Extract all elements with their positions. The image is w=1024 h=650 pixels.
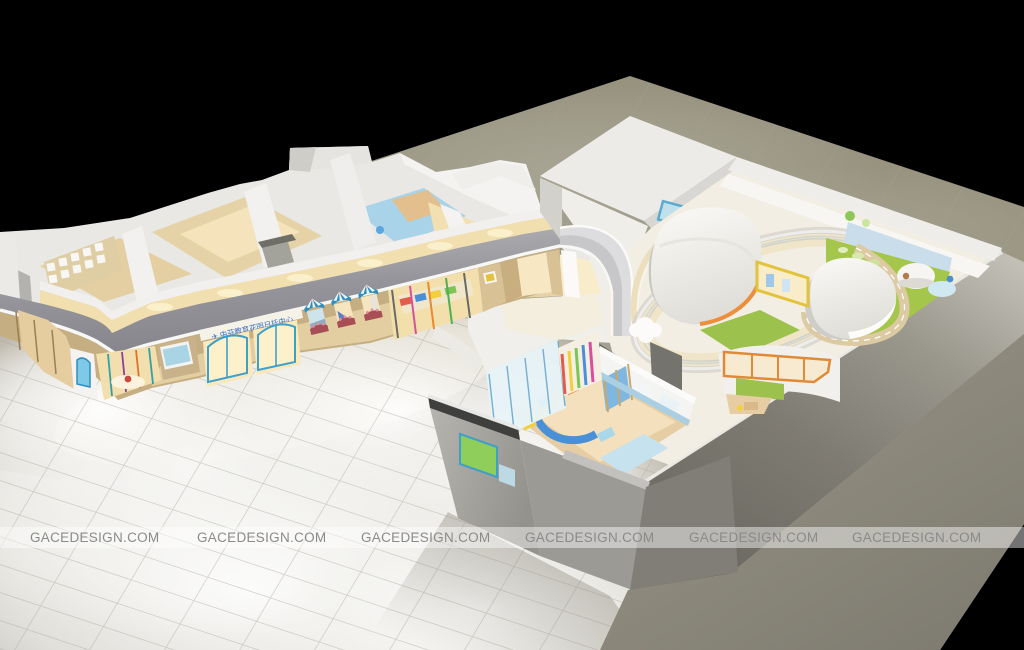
svg-text:GACEDESIGN.COM: GACEDESIGN.COM [197, 530, 326, 545]
svg-text:GACEDESIGN.COM: GACEDESIGN.COM [361, 530, 490, 545]
svg-text:GACEDESIGN.COM: GACEDESIGN.COM [30, 530, 159, 545]
svg-text:GACEDESIGN.COM: GACEDESIGN.COM [525, 530, 654, 545]
svg-text:GACEDESIGN.COM: GACEDESIGN.COM [852, 530, 981, 545]
svg-text:GACEDESIGN.COM: GACEDESIGN.COM [689, 530, 818, 545]
